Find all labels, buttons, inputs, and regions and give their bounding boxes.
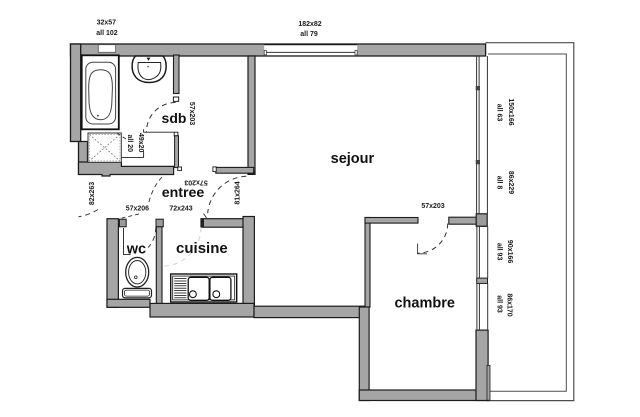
svg-text:chambre: chambre (394, 296, 454, 312)
svg-text:86x170: 86x170 (506, 293, 513, 316)
svg-text:182x82: 182x82 (298, 21, 321, 28)
svg-text:57x206: 57x206 (126, 206, 149, 213)
svg-text:all 93: all 93 (496, 295, 503, 313)
svg-text:86x229: 86x229 (507, 171, 514, 194)
svg-text:all 20: all 20 (126, 135, 133, 153)
svg-text:sdb: sdb (162, 110, 187, 126)
svg-text:32x57: 32x57 (97, 20, 117, 27)
svg-text:all 102: all 102 (96, 30, 118, 37)
svg-text:entree: entree (162, 185, 205, 201)
svg-text:57x203: 57x203 (188, 102, 195, 125)
svg-text:57x203: 57x203 (421, 203, 444, 210)
svg-text:cuisine: cuisine (176, 240, 228, 257)
svg-text:90x166: 90x166 (506, 240, 513, 263)
svg-text:all 79: all 79 (300, 31, 318, 38)
svg-text:sejour: sejour (331, 151, 375, 167)
svg-text:49x20: 49x20 (137, 133, 144, 153)
svg-text:72x243: 72x243 (169, 206, 192, 213)
svg-text:all 93: all 93 (496, 243, 503, 261)
svg-text:81x264: 81x264 (235, 181, 242, 204)
svg-text:wc: wc (126, 242, 146, 258)
svg-text:57x203: 57x203 (184, 179, 207, 186)
svg-text:150x166: 150x166 (507, 98, 514, 125)
svg-text:82x263: 82x263 (89, 182, 96, 205)
svg-text:all 8: all 8 (496, 176, 503, 190)
svg-text:all 63: all 63 (496, 104, 503, 122)
